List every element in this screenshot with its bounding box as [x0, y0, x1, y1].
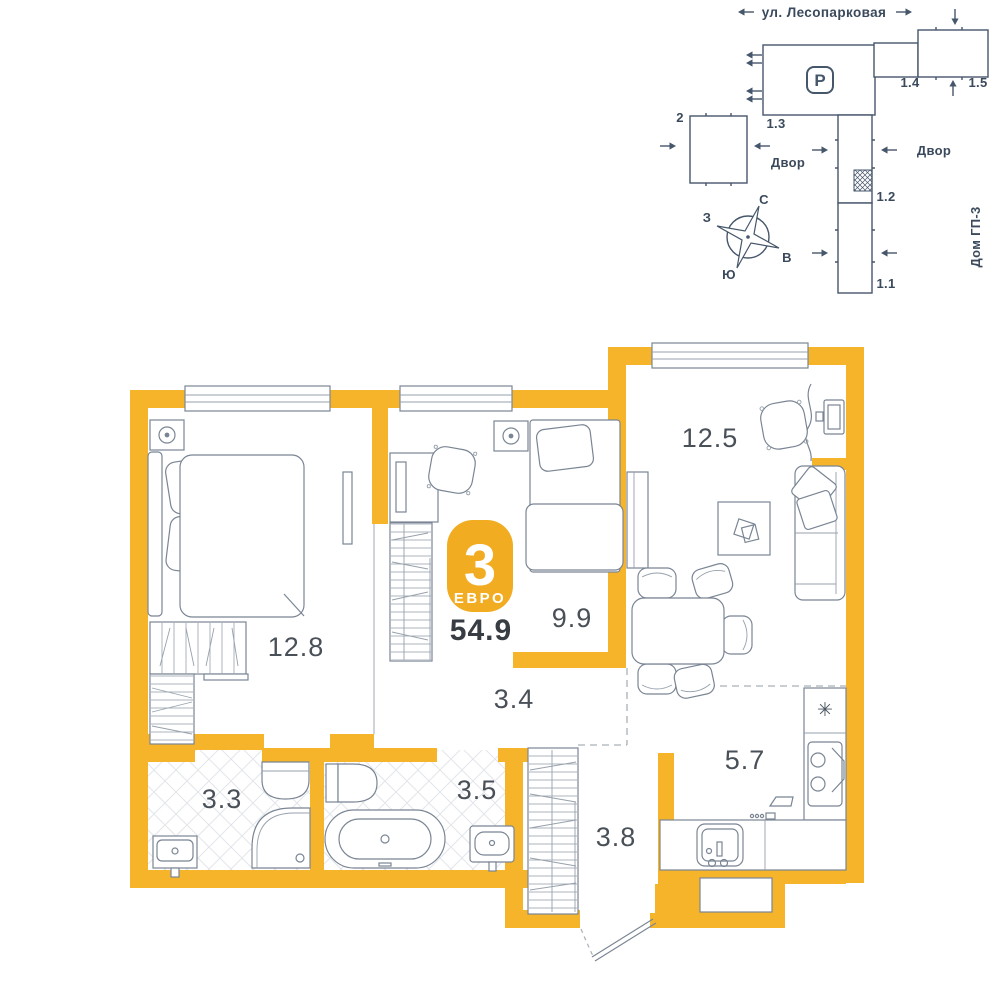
dining-chair	[673, 663, 716, 700]
compass-south: Ю	[722, 267, 736, 282]
yard-label-right: Двор	[917, 143, 951, 158]
toilet	[338, 764, 377, 802]
monitor	[396, 462, 406, 512]
kitchen-furniture: ✳	[660, 688, 846, 870]
street-label: ул. Лесопарковая	[762, 5, 887, 20]
dining-chair	[690, 562, 735, 601]
compass-east: В	[782, 250, 792, 265]
parking-arrow-icon	[746, 87, 762, 94]
building2-arrow-icon	[754, 142, 770, 149]
entrance-arrow-icon	[812, 146, 828, 153]
area-living: 12.5	[682, 423, 739, 453]
toilet-tank	[326, 764, 338, 802]
area-bedroom-2: 9.9	[552, 603, 593, 633]
control-knob	[755, 814, 758, 817]
building-2-label: 2	[676, 110, 684, 125]
area-bathroom-1: 3.3	[202, 784, 243, 814]
building2-arrow-icon	[660, 142, 676, 149]
pedestal	[489, 862, 496, 871]
total-area: 54.9	[450, 614, 512, 647]
house-gp3-label: Дом ГП-3	[968, 206, 983, 267]
window	[652, 343, 808, 368]
dining-table	[632, 598, 724, 664]
wardrobe-shelves	[529, 749, 577, 913]
entrance-arrow-icon	[881, 146, 897, 153]
double-bed	[180, 455, 304, 617]
entrance-arrow-icon	[881, 249, 897, 256]
building-1-4-label: 1.4	[901, 75, 920, 90]
bedroom-1-furniture	[148, 420, 352, 744]
shelf	[343, 472, 352, 544]
compass-west: З	[703, 210, 711, 225]
tv-unit	[627, 472, 648, 568]
toilet	[262, 762, 309, 799]
parking-arrow-icon	[746, 51, 762, 58]
wardrobe-bracket	[204, 674, 248, 680]
building-2	[690, 116, 747, 183]
yard-label-left: Двор	[771, 155, 805, 170]
bed-headboard	[148, 452, 162, 616]
badge-type-label: ЕВРО	[454, 590, 506, 607]
parking-arrow-icon	[746, 95, 762, 102]
badge-room-count: 3	[464, 533, 496, 598]
pillow	[536, 424, 595, 472]
building-1-3-label: 1.3	[767, 116, 786, 131]
building-1-5-label: 1.5	[969, 75, 988, 90]
dining-chair	[638, 568, 676, 598]
apartment-badge: 3 ЕВРО 54.9	[447, 520, 513, 647]
hallway-furniture	[528, 748, 656, 961]
street-arrow-right-icon	[896, 8, 912, 15]
control-knob	[750, 814, 753, 817]
stairwell-hatch	[854, 170, 872, 191]
entry-arrow-up-icon	[949, 80, 956, 96]
area-kitchen: 5.7	[725, 745, 766, 775]
kitchen-duct-inset	[700, 878, 772, 912]
window	[400, 386, 512, 411]
area-corridor: 3.4	[494, 684, 535, 714]
dining-chair	[722, 616, 752, 654]
control-knob	[760, 814, 763, 817]
keyboard	[816, 412, 823, 421]
radiator-icon	[494, 421, 528, 451]
fridge-symbol: ✳	[817, 700, 833, 721]
table-decor	[742, 525, 759, 543]
door-swing-arc	[581, 929, 594, 958]
office-chair	[758, 399, 809, 452]
street-arrow-left-icon	[738, 8, 754, 15]
dining-chair	[638, 664, 676, 694]
dining-set	[632, 562, 752, 700]
floor-plan: ✳	[130, 343, 864, 961]
blanket	[526, 504, 623, 570]
control-panel	[766, 813, 775, 819]
area-hallway: 3.8	[596, 822, 637, 852]
coffee-table	[718, 502, 770, 555]
hood-mark	[770, 797, 793, 806]
desk-chair	[427, 445, 478, 496]
floorplan-page: ул. Лесопарковая P 2 1.3 1.4 1.5 1.2 1.1…	[0, 0, 1000, 1000]
area-bathroom-2: 3.5	[457, 775, 498, 805]
parking-arrow-icon	[746, 59, 762, 66]
area-bedroom-1: 12.8	[268, 632, 325, 662]
site-plan: ул. Лесопарковая P 2 1.3 1.4 1.5 1.2 1.1…	[660, 5, 988, 293]
entry-arrow-down-icon	[951, 9, 958, 25]
building-1-4	[874, 43, 918, 77]
building-1-2-label: 1.2	[877, 189, 896, 204]
faucet	[717, 842, 722, 856]
compass-rose: С Ю З В	[703, 192, 792, 282]
building-1-5	[918, 30, 988, 77]
building-1-1	[838, 203, 872, 293]
window	[185, 386, 330, 411]
building-1-1-label: 1.1	[877, 276, 896, 291]
entrance-door	[592, 919, 656, 961]
pedestal	[171, 868, 179, 877]
parking-letter: P	[814, 71, 825, 90]
desk-edge	[806, 384, 812, 461]
compass-north: С	[759, 192, 769, 207]
kitchen-counter-bottom	[660, 820, 846, 870]
entrance-arrow-icon	[812, 249, 828, 256]
radiator-icon	[150, 420, 184, 450]
floorplan-canvas: ул. Лесопарковая P 2 1.3 1.4 1.5 1.2 1.1…	[0, 0, 1000, 1000]
